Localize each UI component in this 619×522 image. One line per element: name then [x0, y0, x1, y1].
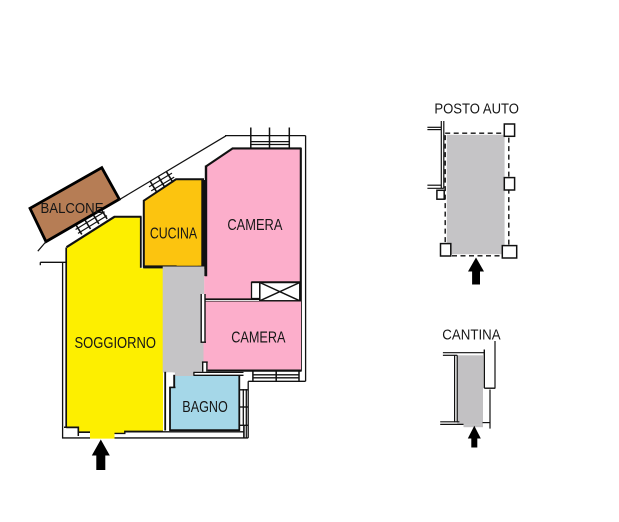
- svg-text:BAGNO: BAGNO: [182, 399, 228, 416]
- svg-text:CAMERA: CAMERA: [231, 330, 286, 347]
- svg-text:CUCINA: CUCINA: [150, 226, 198, 243]
- svg-text:CAMERA: CAMERA: [227, 217, 282, 234]
- svg-text:BALCONE: BALCONE: [41, 201, 104, 217]
- svg-text:POSTO AUTO: POSTO AUTO: [434, 100, 519, 117]
- svg-text:CANTINA: CANTINA: [442, 327, 500, 344]
- svg-text:SOGGIORNO: SOGGIORNO: [75, 335, 157, 352]
